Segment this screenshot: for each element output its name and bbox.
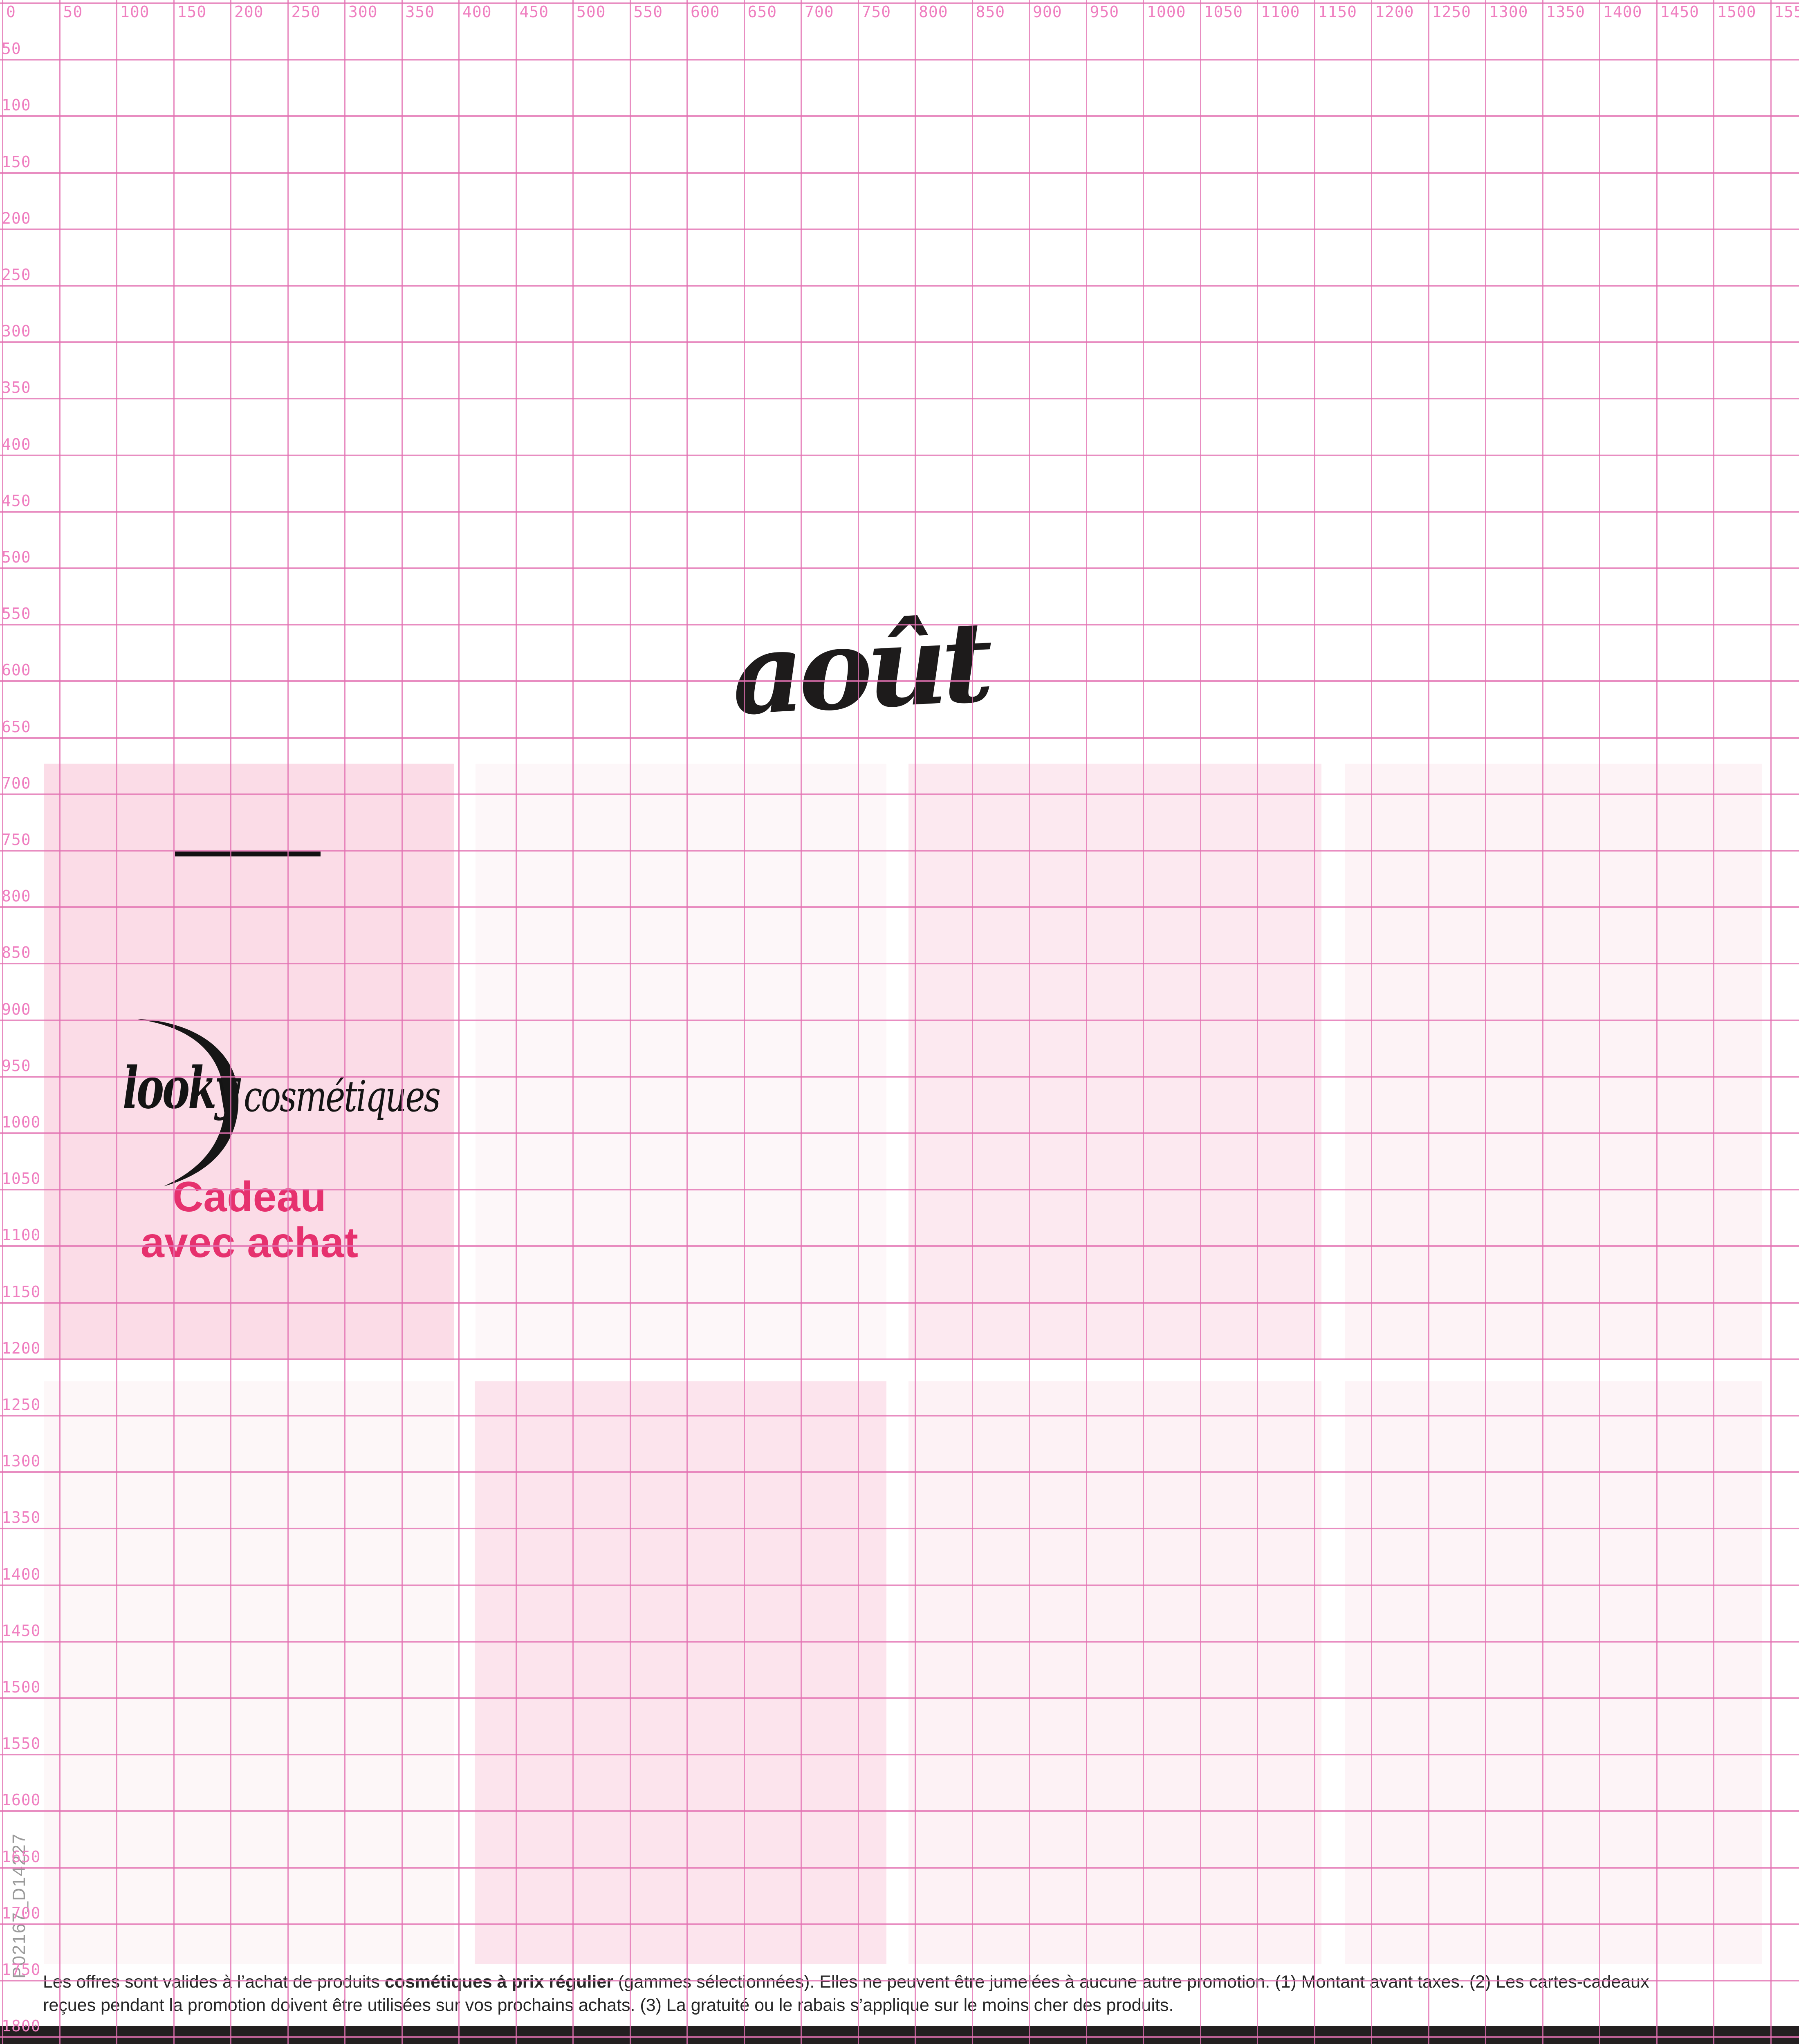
artwork-layer: août looky cosmétiques Cadeau avec achat…: [0, 0, 1799, 2044]
legal-disclaimer: Les offres sont valides à l’achat de pro…: [43, 1970, 1781, 2017]
disclaimer-bold-text: cosmétiques à prix régulier: [385, 1972, 613, 1992]
proof-sheet-page: août looky cosmétiques Cadeau avec achat…: [0, 0, 1799, 2044]
disclaimer-text: Les offres sont valides à l’achat de pro…: [43, 1972, 385, 1992]
disclaimer-line-1: Les offres sont valides à l’achat de pro…: [43, 1970, 1781, 1994]
gift-with-purchase-text: Cadeau avec achat: [57, 1174, 442, 1266]
disclaimer-text: (gammes sélectionnées). Elles ne peuvent…: [613, 1972, 1649, 1992]
job-code-vertical: P02167_D14227: [9, 1833, 29, 1979]
looky-logo-descriptor: cosmétiques: [244, 1075, 440, 1118]
underline-bar: [175, 852, 321, 856]
looky-logo-wordmark: looky: [123, 1060, 237, 1117]
month-title: août: [729, 607, 990, 731]
looky-crescent-icon: [0, 0, 1799, 2044]
promo-line-2: avec achat: [57, 1220, 442, 1266]
printer-footer-band: [0, 2026, 1799, 2044]
promo-line-1: Cadeau: [57, 1174, 442, 1220]
disclaimer-line-2: reçues pendant la promotion doivent être…: [43, 1994, 1781, 2017]
